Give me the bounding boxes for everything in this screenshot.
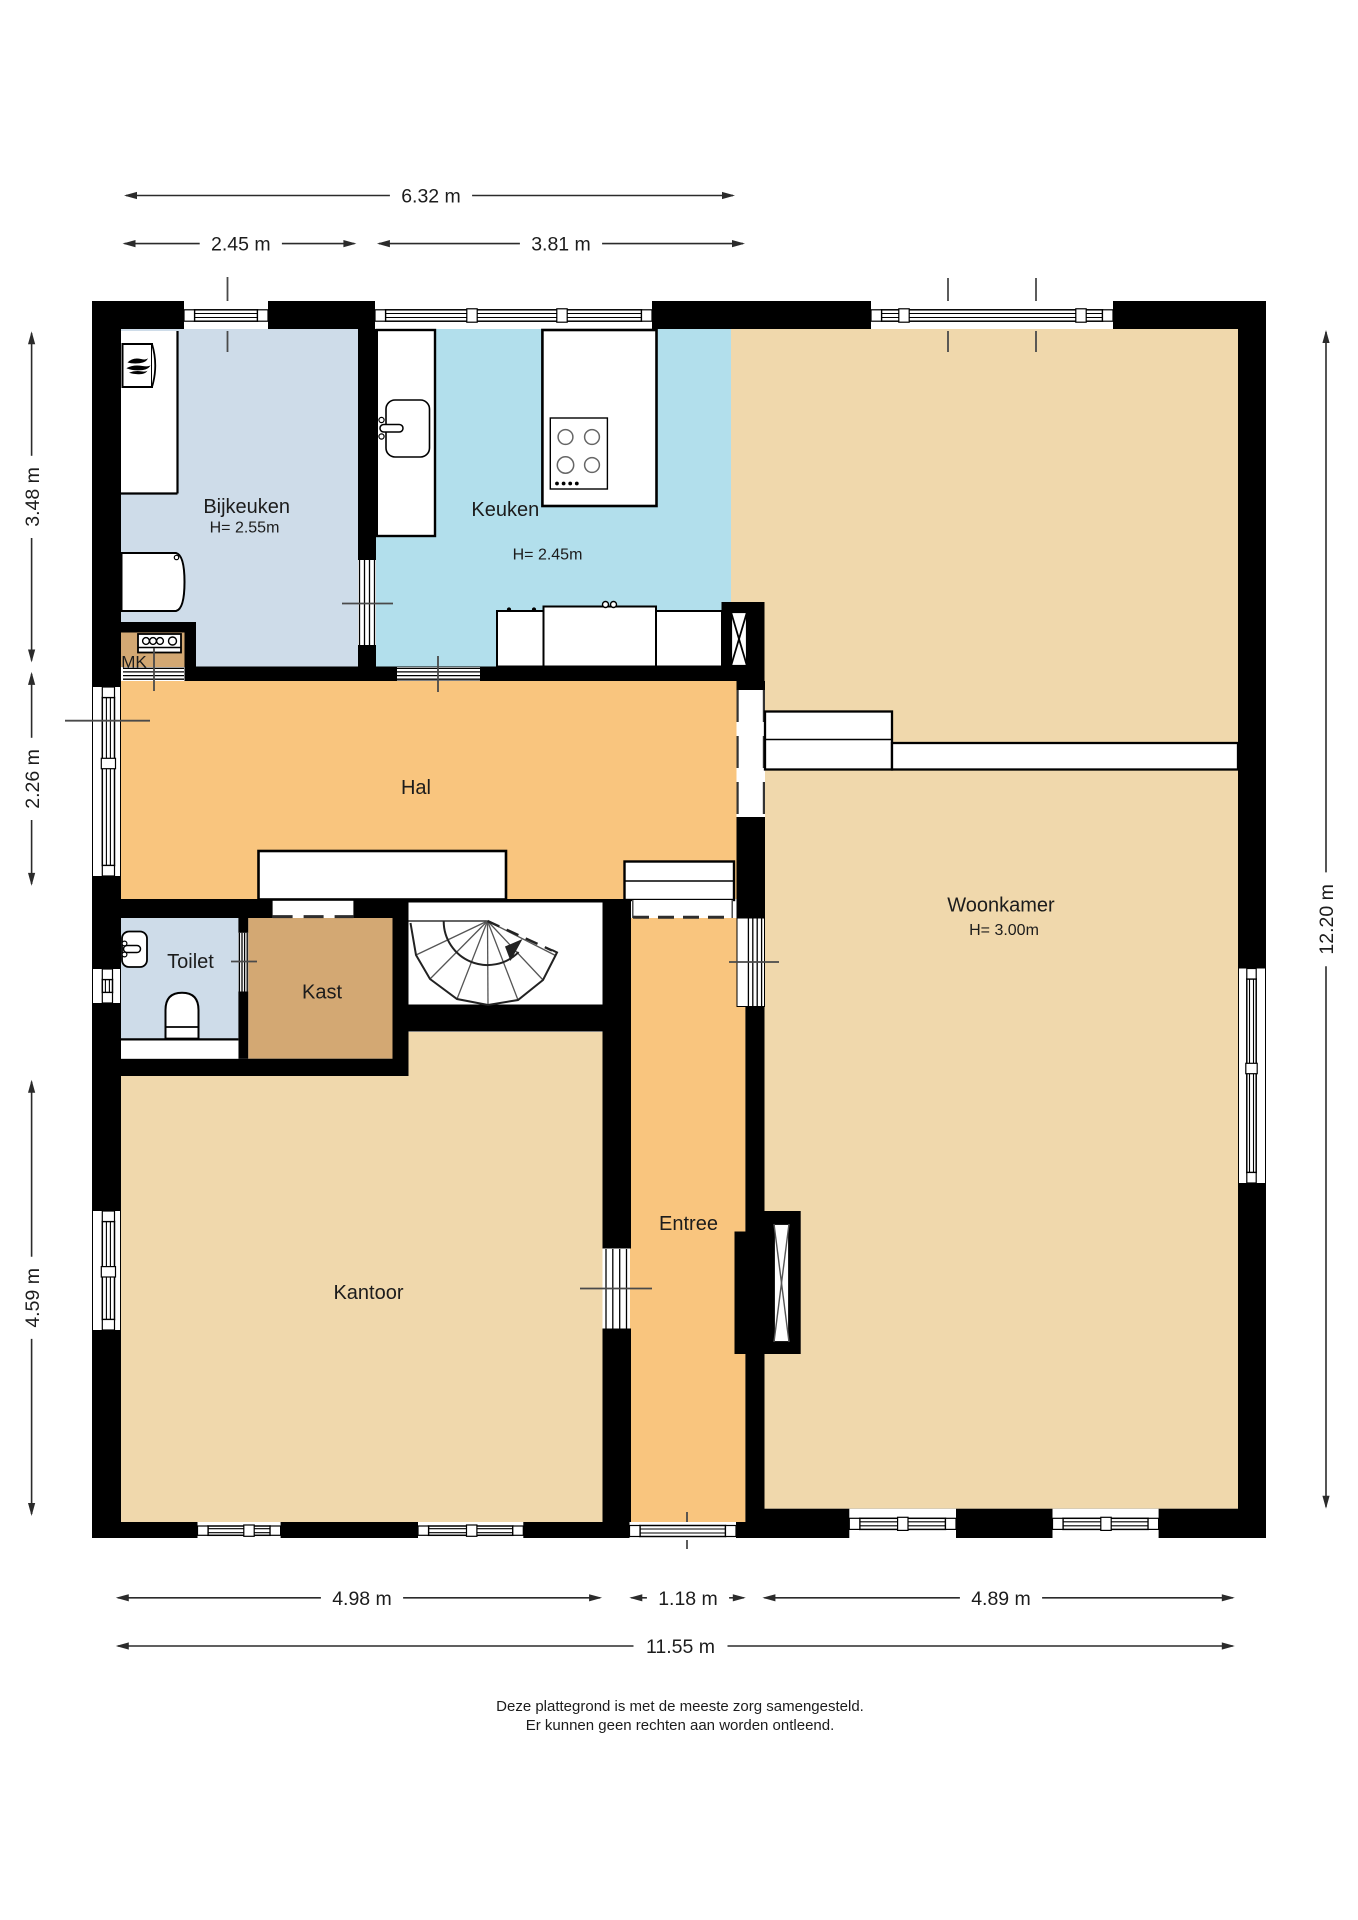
svg-text:3.48 m: 3.48 m <box>22 467 44 527</box>
svg-text:Deze plattegrond is met de mee: Deze plattegrond is met de meeste zorg s… <box>496 1698 864 1715</box>
svg-text:4.98 m: 4.98 m <box>332 1588 392 1610</box>
svg-text:H= 2.55m: H= 2.55m <box>210 520 280 537</box>
svg-text:Er kunnen geen rechten aan wor: Er kunnen geen rechten aan worden ontlee… <box>526 1717 835 1734</box>
svg-text:1.18 m: 1.18 m <box>658 1588 718 1610</box>
svg-text:Kast: Kast <box>302 982 342 1004</box>
svg-text:2.26 m: 2.26 m <box>22 749 44 809</box>
svg-text:MK: MK <box>121 653 147 672</box>
svg-text:Hal: Hal <box>401 777 431 799</box>
svg-text:Toilet: Toilet <box>167 951 214 973</box>
svg-text:3.81 m: 3.81 m <box>531 234 591 256</box>
svg-text:Entree: Entree <box>659 1213 718 1235</box>
svg-text:Woonkamer: Woonkamer <box>947 895 1055 917</box>
svg-text:2.45 m: 2.45 m <box>211 234 271 256</box>
svg-text:12.20 m: 12.20 m <box>1316 884 1338 954</box>
svg-text:Kantoor: Kantoor <box>333 1282 403 1304</box>
svg-text:Keuken: Keuken <box>471 499 539 521</box>
svg-text:H= 3.00m: H= 3.00m <box>969 922 1039 939</box>
svg-text:4.89 m: 4.89 m <box>971 1588 1031 1610</box>
svg-text:Bijkeuken: Bijkeuken <box>203 496 290 518</box>
svg-text:H= 2.45m: H= 2.45m <box>513 547 583 564</box>
svg-text:4.59 m: 4.59 m <box>22 1268 44 1328</box>
svg-text:6.32 m: 6.32 m <box>401 186 461 208</box>
svg-text:11.55 m: 11.55 m <box>646 1636 715 1658</box>
